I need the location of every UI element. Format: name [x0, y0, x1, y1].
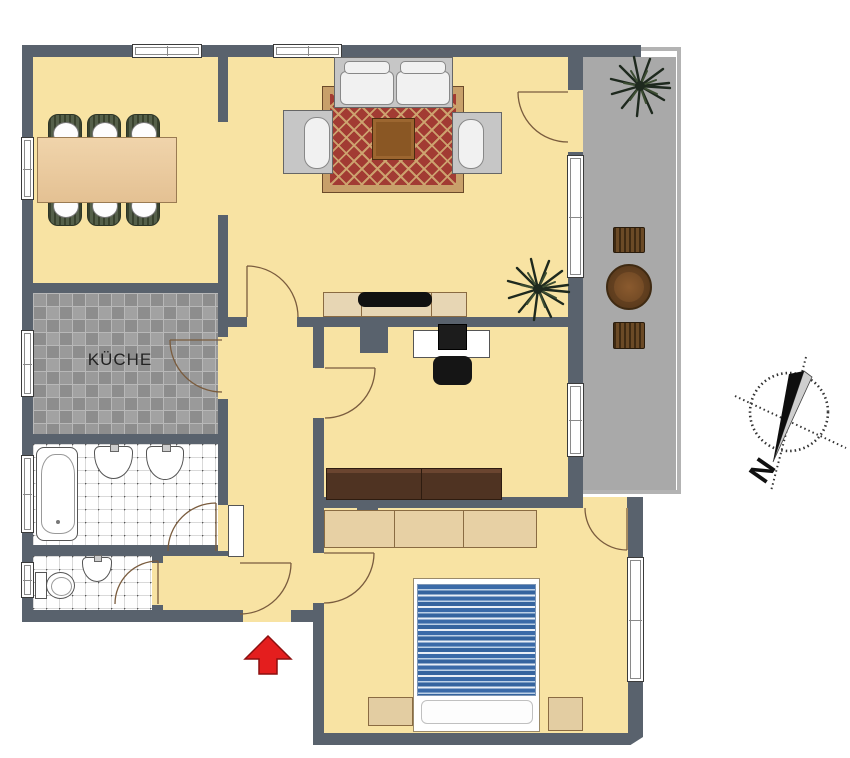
- doorway-living-balcony: [568, 90, 583, 152]
- entrance-arrow-icon: [245, 636, 291, 674]
- doorway-bedroom-balcony: [583, 497, 627, 508]
- window-left-wc: [21, 562, 34, 598]
- doorway-wc: [152, 563, 163, 605]
- doorway-kitchen: [218, 337, 228, 399]
- hallway-floor: [228, 327, 313, 610]
- toilet-bowl: [46, 572, 75, 599]
- doorway-office: [313, 368, 324, 418]
- floor-plan: KÜCHE: [0, 0, 850, 758]
- balcony-rail-top: [641, 47, 681, 51]
- duct-column-office: [360, 327, 388, 353]
- balcony-rail-bottom: [583, 490, 681, 494]
- office-chair: [433, 356, 472, 385]
- doorway-entrance: [243, 610, 291, 622]
- hallway-extension-floor: [163, 556, 228, 610]
- compass-needle-light: [773, 371, 812, 462]
- sink-tap: [110, 444, 119, 452]
- armchair-right: [452, 112, 502, 174]
- sink-tap: [94, 555, 102, 562]
- balcony-chair-bottom: [613, 322, 645, 349]
- doorway-bedroom: [313, 553, 324, 603]
- balcony-table: [606, 264, 652, 310]
- sofa: [334, 57, 453, 108]
- balcony-chair-top: [613, 227, 645, 253]
- wall-bottom-left: [22, 610, 243, 622]
- sink-tap: [162, 444, 171, 452]
- window-top-dining: [132, 44, 202, 58]
- balcony-rail-right: [677, 47, 681, 494]
- bathtub: [36, 447, 78, 541]
- window-left-dining: [21, 137, 34, 200]
- compass-icon: N: [735, 357, 846, 491]
- window-left-bathroom: [21, 455, 34, 533]
- window-office-balcony: [567, 383, 584, 457]
- doorway-hall-living: [247, 317, 297, 327]
- hall-closet: [228, 505, 244, 557]
- armchair-left: [283, 110, 333, 174]
- doorway-bathroom: [218, 505, 228, 551]
- nightstand-left: [368, 697, 413, 726]
- office-couch: [326, 468, 502, 500]
- dining-table: [37, 137, 177, 203]
- compass-needle-dark: [773, 371, 804, 462]
- coffee-table: [372, 118, 415, 160]
- opening-dining-living: [218, 122, 228, 215]
- sofa-pillow: [344, 61, 390, 74]
- wall-bath-wc: [22, 545, 218, 556]
- wall-kitchen-bath: [22, 434, 228, 444]
- armchair-cushion: [458, 119, 484, 169]
- sofa-cushion: [340, 71, 394, 105]
- window-bedroom-right: [627, 557, 644, 682]
- wardrobe: [324, 510, 537, 548]
- sofa-pillow: [400, 61, 446, 74]
- nightstand-right: [548, 697, 583, 731]
- sofa-cushion: [396, 71, 450, 105]
- wall-bedroom-bottom: [313, 733, 643, 745]
- armchair-cushion: [304, 117, 330, 169]
- compass-north-label: N: [743, 452, 782, 489]
- kitchen-label: KÜCHE: [60, 350, 180, 370]
- bed-pillow: [421, 700, 533, 724]
- wall-dining-kitchen: [22, 283, 228, 293]
- window-top-living: [273, 44, 342, 58]
- window-living-balcony: [567, 155, 584, 278]
- monitor: [438, 324, 467, 350]
- tv: [358, 292, 432, 307]
- window-left-kitchen: [21, 330, 34, 397]
- bed-mattress: [417, 584, 536, 696]
